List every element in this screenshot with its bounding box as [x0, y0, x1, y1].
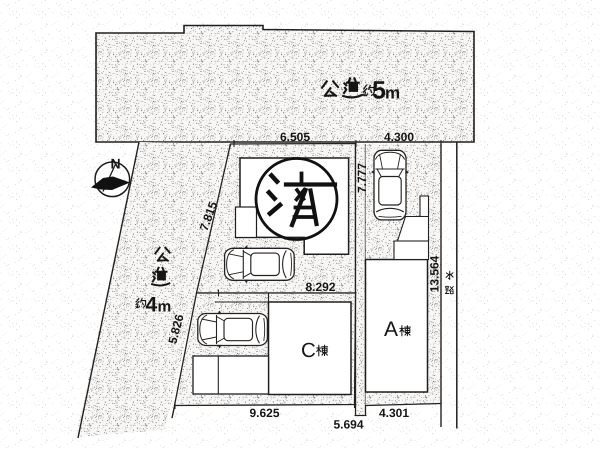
- svg-text:8.292: 8.292: [305, 280, 335, 294]
- svg-text:7.777: 7.777: [355, 163, 369, 193]
- svg-text:9.625: 9.625: [249, 406, 279, 420]
- svg-text:5.694: 5.694: [333, 418, 363, 432]
- svg-text:4: 4: [146, 294, 158, 317]
- svg-text:4.300: 4.300: [384, 130, 414, 144]
- svg-text:A: A: [384, 318, 398, 341]
- svg-text:m: m: [385, 84, 400, 103]
- svg-text:13.564: 13.564: [428, 255, 442, 292]
- svg-text:m: m: [158, 299, 172, 316]
- svg-text:5: 5: [372, 77, 386, 105]
- svg-text:6.505: 6.505: [280, 130, 310, 144]
- svg-text:C: C: [301, 339, 316, 362]
- svg-text:4.301: 4.301: [379, 406, 409, 420]
